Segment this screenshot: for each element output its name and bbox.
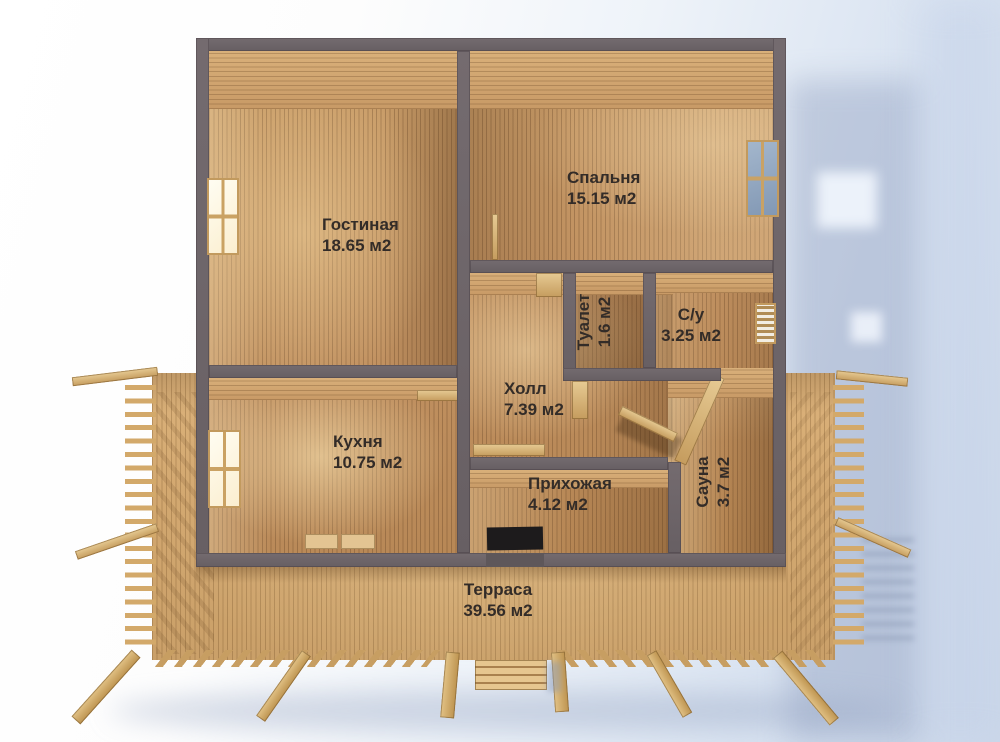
wall-face-bathroom — [656, 273, 773, 293]
room-area: 4.12 м2 — [528, 494, 612, 515]
room-name: Прихожая — [528, 473, 612, 494]
room-bedroom-label: Спальня 15.15 м2 — [567, 167, 640, 209]
room-kitchen-label: Кухня 10.75 м2 — [333, 431, 402, 473]
wall-sauna-left — [668, 462, 681, 553]
wall-exterior-top — [196, 38, 786, 51]
window-kitchen — [210, 432, 239, 506]
room-name: Сауна — [692, 456, 713, 507]
room-area: 39.56 м2 — [455, 600, 541, 621]
railing-rail-left-top — [72, 367, 158, 386]
railing-left — [125, 385, 156, 653]
bedroom-open-door-edge — [492, 214, 498, 260]
room-name: Гостиная — [322, 214, 399, 235]
background-window-light-patch-small — [851, 312, 882, 342]
room-sauna-label: Сауна 3.7 м2 — [692, 456, 734, 507]
toilet-door-leaf — [572, 381, 588, 419]
hall-bench — [473, 444, 545, 456]
room-area: 15.15 м2 — [567, 188, 640, 209]
ground-shadow — [110, 690, 900, 732]
room-area: 3.7 м2 — [713, 456, 734, 507]
window-bathroom-vent — [757, 305, 774, 342]
wall-living-kitchen — [209, 365, 457, 378]
room-area: 3.25 м2 — [655, 325, 727, 346]
wall-exterior-right — [773, 38, 786, 567]
room-area: 1.6 м2 — [594, 294, 615, 351]
wall-face-bedroom — [470, 51, 773, 109]
room-living-label: Гостиная 18.65 м2 — [322, 214, 399, 256]
terrace-steps — [475, 660, 547, 690]
room-name: Спальня — [567, 167, 640, 188]
wall-bathroom-bottom — [563, 368, 721, 381]
kitchen-floor-hatch — [341, 534, 375, 549]
wall-face-toilet — [576, 273, 643, 291]
room-area: 7.39 м2 — [504, 399, 564, 420]
room-name: Терраса — [455, 579, 541, 600]
window-living — [209, 180, 237, 253]
kitchen-shelf — [417, 390, 458, 401]
bedroom-door-leaf — [536, 273, 562, 297]
room-entry-label: Прихожая 4.12 м2 — [528, 473, 612, 515]
room-name: С/у — [655, 304, 727, 325]
room-bathroom-label: С/у 3.25 м2 — [655, 304, 727, 346]
room-name: Холл — [504, 378, 564, 399]
wall-central — [457, 51, 470, 553]
wall-exterior-left — [196, 38, 209, 567]
wall-face-living — [209, 51, 457, 109]
terrace-label: Терраса 39.56 м2 — [455, 579, 541, 621]
floor-plan-scene: Гостиная 18.65 м2 Спальня 15.15 м2 Кухня… — [0, 0, 1000, 742]
room-area: 18.65 м2 — [322, 235, 399, 256]
room-toilet-label: Туалет 1.6 м2 — [573, 294, 615, 351]
entry-doormat — [487, 527, 543, 551]
wall-hall-entry — [470, 457, 668, 470]
entrance-door — [486, 553, 544, 567]
room-area: 10.75 м2 — [333, 452, 402, 473]
background-window-light-patch — [817, 172, 877, 228]
wall-bedroom-bottom — [470, 260, 773, 273]
room-name: Кухня — [333, 431, 402, 452]
steps-shadow — [547, 662, 561, 692]
background-shadow-soft — [920, 0, 1000, 742]
kitchen-floor-hatch — [305, 534, 338, 549]
room-hall-label: Холл 7.39 м2 — [504, 378, 564, 420]
window-bedroom — [748, 142, 777, 215]
railing-shadow-right — [790, 392, 832, 654]
room-name: Туалет — [573, 294, 594, 351]
